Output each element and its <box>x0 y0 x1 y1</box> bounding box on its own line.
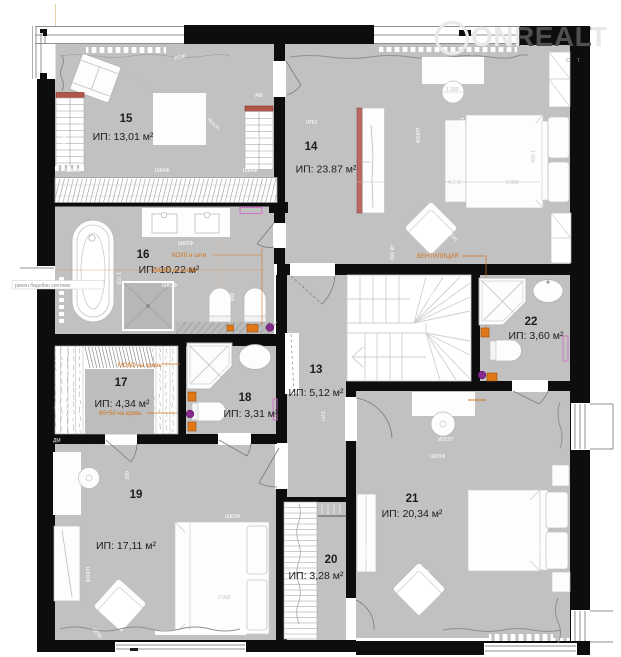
svg-text:ИП: 17,11 м²: ИП: 17,11 м² <box>96 540 157 552</box>
svg-text:ИП: 13,01 м²: ИП: 13,01 м² <box>93 131 154 143</box>
svg-text:2МебП из гроба: 2МебП из гроба <box>152 268 197 274</box>
svg-text:ИП: 3,31 м²: ИП: 3,31 м² <box>224 408 280 420</box>
svg-text:АМ: АМ <box>255 93 263 99</box>
svg-text:48 150: 48 150 <box>388 245 394 261</box>
svg-text:ШКОФ: ШКОФ <box>414 128 420 143</box>
svg-text:ШКАФ: ШКАФ <box>66 168 81 174</box>
svg-text:ПООШ: ПООШ <box>458 118 464 134</box>
svg-text:С Т О И Т: С Т О И Т <box>470 52 520 58</box>
svg-text:ТУП: ТУП <box>319 411 325 421</box>
svg-text:ВЕНТИЛЯЦИЯ: ВЕНТИЛЯЦИЯ <box>417 254 459 260</box>
svg-text:15: 15 <box>120 113 133 125</box>
svg-text:1 700: 1 700 <box>115 272 121 285</box>
svg-text:ШКОФ: ШКОФ <box>430 454 445 460</box>
svg-text:18: 18 <box>239 392 252 404</box>
svg-text:ШКОФ: ШКОФ <box>84 567 90 582</box>
svg-text:ИП: 20,34 м²: ИП: 20,34 м² <box>382 508 443 520</box>
svg-text:ВЕНОЗ: ВЕНОЗ <box>428 285 434 302</box>
svg-text:2 000: 2 000 <box>218 595 231 601</box>
svg-text:ЗГВ: ЗГВ <box>253 135 259 145</box>
svg-text:С Т: С Т <box>566 58 583 64</box>
svg-text:ШКОФ: ШКОФ <box>162 283 177 289</box>
svg-text:600: 600 <box>123 471 129 480</box>
svg-text:ЗГВ: ЗГВ <box>60 135 66 145</box>
svg-text:800: 800 <box>228 293 234 302</box>
svg-text:22: 22 <box>525 316 538 328</box>
svg-text:ЗГБ: ЗГБ <box>454 404 460 414</box>
svg-text:20: 20 <box>325 554 338 566</box>
svg-text:17: 17 <box>115 377 128 389</box>
svg-text:ИП: 3,60 м²: ИП: 3,60 м² <box>509 330 565 342</box>
svg-text:ИП: 4,34 м²: ИП: 4,34 м² <box>95 398 151 410</box>
svg-text:ШКАФ: ШКАФ <box>243 168 258 174</box>
svg-text:ИП: 5,12 м²: ИП: 5,12 м² <box>289 387 345 399</box>
svg-text:ТБ: ТБ <box>452 180 459 186</box>
svg-text:ИООП: ИООП <box>438 437 453 443</box>
svg-text:КОХб и сети: КОХб и сети <box>172 253 206 259</box>
svg-text:ИП: 23.87 м²: ИП: 23.87 м² <box>296 164 357 176</box>
svg-text:14: 14 <box>305 141 318 153</box>
svg-text:1 200: 1 200 <box>446 87 459 93</box>
svg-text:2 000: 2 000 <box>506 180 519 186</box>
svg-text:16: 16 <box>137 249 150 261</box>
svg-text:ИП: 3,28 м²: ИП: 3,28 м² <box>289 570 345 582</box>
svg-text:1 100: 1 100 <box>534 540 540 553</box>
svg-text:ШКОФ: ШКОФ <box>225 514 240 520</box>
svg-text:ринон бидобон системо: ринон бидобон системо <box>15 283 71 289</box>
svg-text:19: 19 <box>130 489 143 501</box>
svg-text:600: 600 <box>443 75 449 84</box>
svg-text:ИООП: ИООП <box>200 523 215 529</box>
svg-text:60+50 на кровь: 60+50 на кровь <box>99 411 141 417</box>
svg-text:21: 21 <box>406 493 419 505</box>
svg-text:ШКОФ: ШКОФ <box>362 545 368 560</box>
svg-text:13: 13 <box>310 364 323 376</box>
svg-text:ИПО: ИПО <box>306 120 317 126</box>
svg-text:ДМ: ДМ <box>53 438 61 444</box>
svg-text:ШКАФ: ШКАФ <box>155 168 170 174</box>
svg-text:1 600: 1 600 <box>529 150 535 163</box>
svg-text:МОбО на кровь: МОбО на кровь <box>118 363 161 369</box>
svg-text:ШКОФ: ШКОФ <box>424 570 430 585</box>
svg-text:ШКОФ: ШКОФ <box>178 241 193 247</box>
